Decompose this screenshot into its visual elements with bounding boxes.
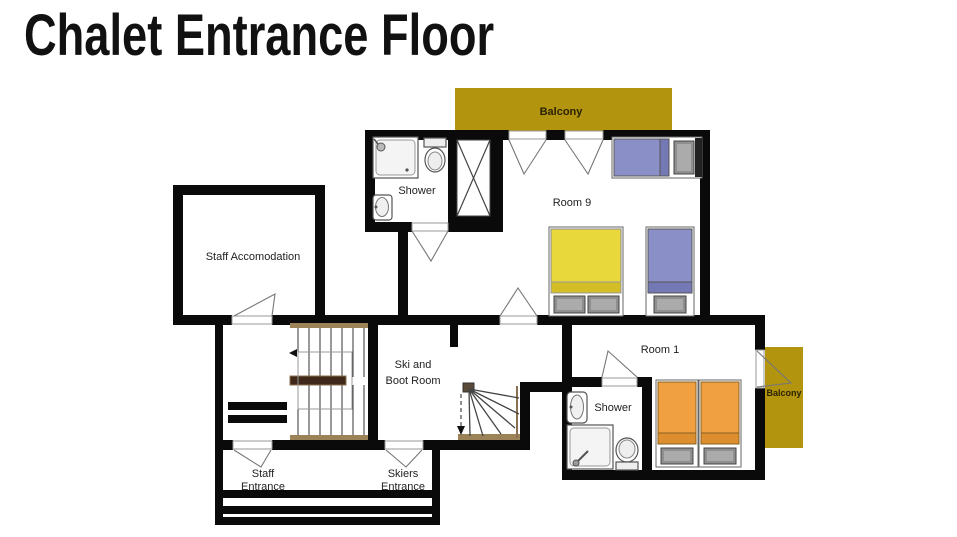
ski-boot-room-label-1: Ski and [395, 359, 432, 371]
bed-single-blue [646, 227, 694, 316]
shower-top-door [412, 223, 448, 231]
staircase-winder [457, 383, 520, 440]
headboard [695, 138, 702, 177]
toilet-tank [616, 462, 638, 470]
ensuite-door [602, 378, 637, 386]
skiers-entrance-label-1: Skiers [388, 468, 419, 480]
balcony-right: Balcony [765, 347, 803, 448]
winder-direction-arrow [457, 426, 465, 435]
french-door-left [509, 131, 546, 139]
skiers-entrance-door [385, 441, 423, 449]
bed-twin-orange-2 [699, 380, 741, 467]
bed-double-yellow [549, 227, 623, 316]
bed-twin-orange-1 [656, 380, 698, 467]
balcony-top-label: Balcony [540, 106, 584, 118]
room1-balcony-door [756, 350, 764, 388]
shower-room-top: Shower [373, 137, 446, 220]
shower-top-label: Shower [398, 185, 436, 197]
staff-accommodation-label: Staff Accomodation [206, 251, 301, 263]
bed-single-horizontal [612, 137, 702, 178]
staff-room-door [232, 316, 272, 324]
staircase-main [289, 323, 368, 440]
ski-boot-room-label-2: Boot Room [385, 375, 440, 387]
floor-plan: Balcony Balcony [0, 0, 957, 537]
toilet-tank [424, 138, 446, 147]
room9-door [500, 316, 537, 324]
porch-step [223, 506, 432, 514]
shower-head-icon [377, 143, 385, 151]
hall-bench-bar [228, 415, 287, 423]
french-door-right [565, 131, 603, 139]
balcony-top: Balcony [455, 88, 672, 133]
hall-bench-bar [228, 402, 287, 410]
skiers-entrance-label-2: Entrance [381, 481, 425, 493]
stair-direction-arrow [289, 349, 297, 357]
room9-label: Room 9 [553, 197, 592, 209]
staff-entrance-door [233, 441, 272, 449]
balcony-right-label: Balcony [766, 388, 801, 398]
staff-entrance-label-1: Staff [252, 468, 275, 480]
closet-shaft [457, 140, 490, 216]
staff-entrance-label-2: Entrance [241, 481, 285, 493]
shower-room-ensuite: Shower [567, 392, 638, 470]
room1-label: Room 1 [641, 344, 680, 356]
shower-ensuite-label: Shower [594, 402, 632, 414]
